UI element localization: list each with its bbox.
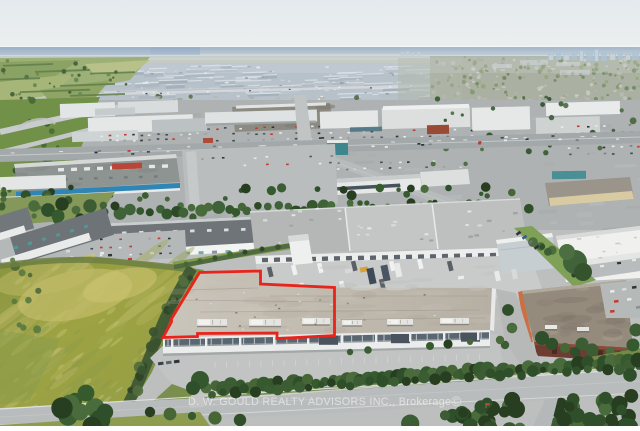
svg-text:D. W. GOULD REALTY ADVISORS IN: D. W. GOULD REALTY ADVISORS INC., Broker… (188, 394, 462, 409)
